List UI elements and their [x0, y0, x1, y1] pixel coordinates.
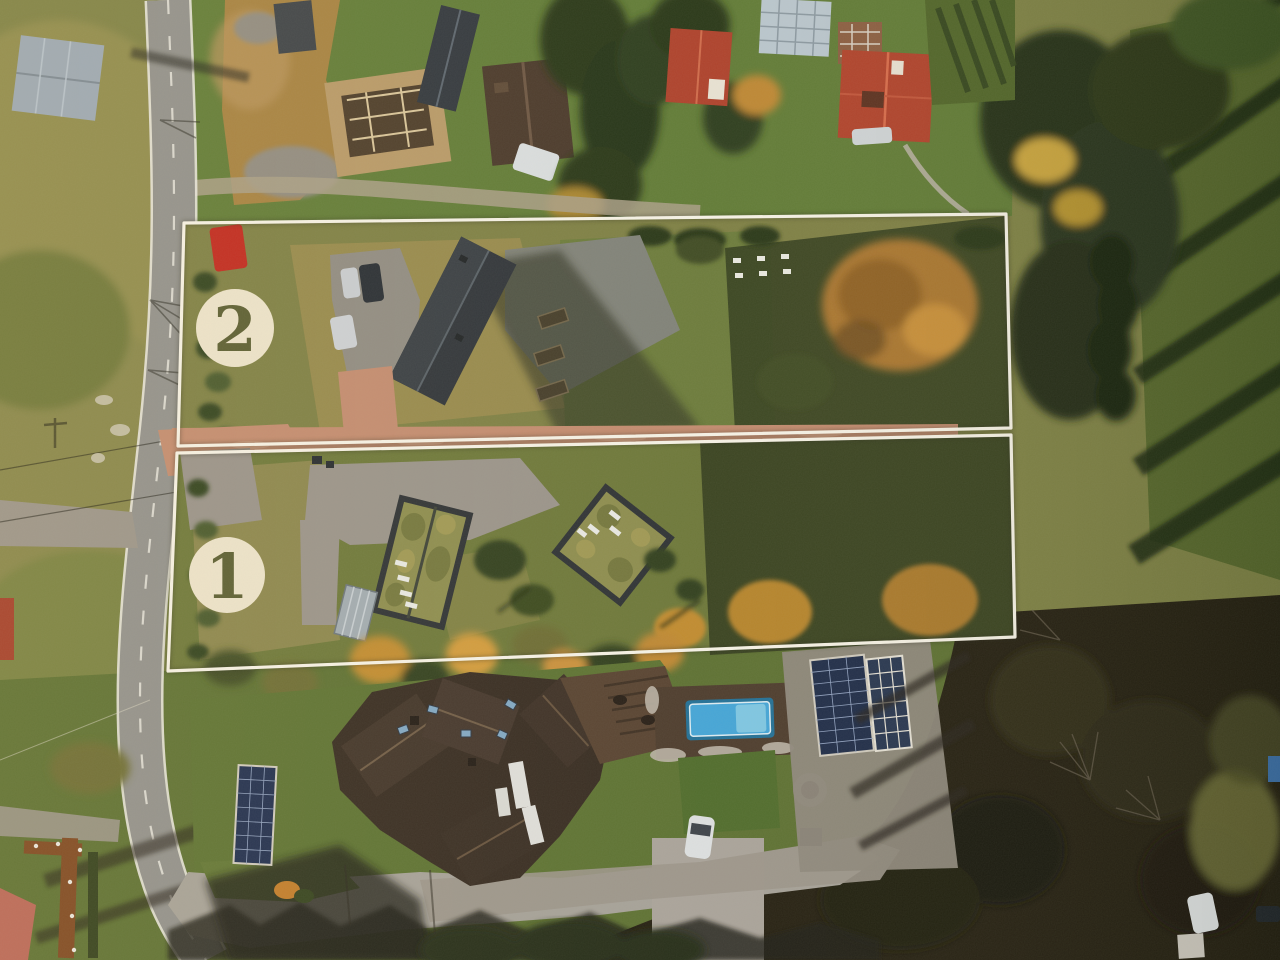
aerial-photo-canvas: 2 1: [0, 0, 1280, 960]
aerial-photo: 2 1: [0, 0, 1280, 960]
grain-overlay: [0, 0, 1280, 960]
